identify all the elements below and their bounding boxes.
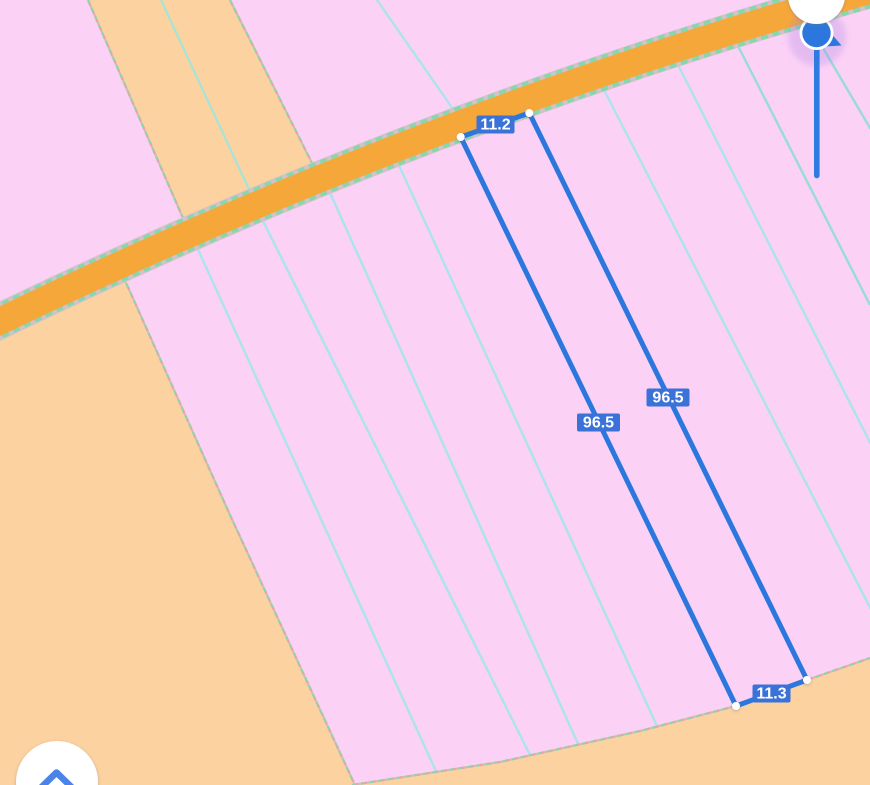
- svg-text:11.3: 11.3: [756, 686, 786, 703]
- svg-text:96.5: 96.5: [652, 390, 683, 407]
- svg-text:96.5: 96.5: [583, 415, 614, 432]
- svg-text:11.2: 11.2: [480, 117, 510, 134]
